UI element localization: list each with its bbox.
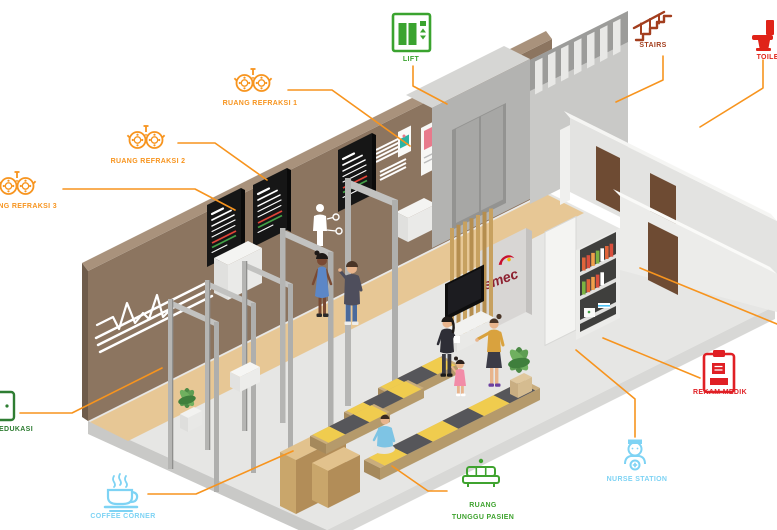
trial-frame-icon	[234, 69, 271, 91]
label-edukasi: EDUKASI	[0, 426, 33, 433]
label-refraksi2: RUANG REFRAKSI 2	[111, 158, 186, 165]
label-nurse-station: NURSE STATION	[607, 476, 668, 483]
nurse-station-panel	[545, 217, 576, 346]
label-refraksi1: RUANG REFRAKSI 1	[223, 100, 298, 107]
floorplan-infographic: smec	[0, 0, 777, 530]
book-icon	[0, 392, 14, 420]
callout-line-toilet	[700, 60, 763, 127]
label-rekam-medik: REKAM MEDIK	[693, 389, 747, 396]
nurse-icon	[625, 440, 645, 470]
trial-frame-icon	[0, 172, 36, 194]
callout-line-refraksi2	[178, 143, 267, 180]
label-ruang-tunggu-2: TUNGGU PASIEN	[452, 514, 514, 521]
elevator-icon	[393, 14, 430, 51]
medical-record-icon	[704, 350, 734, 392]
label-lift: LIFT	[403, 56, 420, 63]
label-coffee-corner: COFFEE CORNER	[90, 513, 155, 520]
stairs-icon	[634, 12, 671, 40]
label-stairs: STAIRS	[639, 42, 666, 49]
label-ruang-tunggu-1: RUANG	[469, 502, 497, 509]
label-refraksi3: RUANG REFRAKSI 3	[0, 203, 57, 210]
toilet-icon	[752, 20, 774, 51]
coffee-cup-icon	[105, 474, 137, 511]
trial-frame-icon	[127, 126, 164, 148]
label-toilet: TOILET	[757, 54, 777, 61]
floorplan-illustration: smec	[0, 0, 777, 530]
